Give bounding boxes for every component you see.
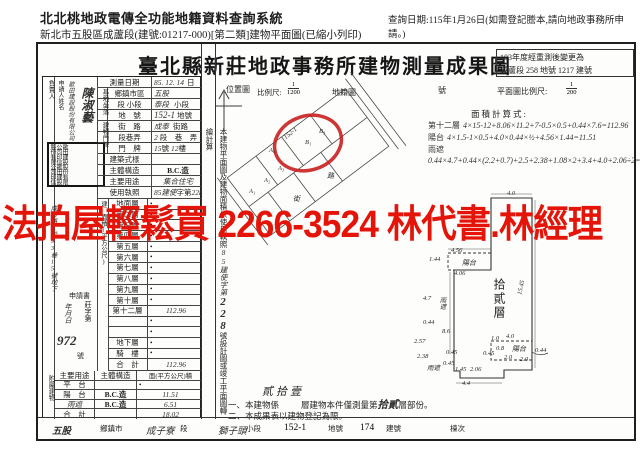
plan-dim: 1.0	[491, 335, 499, 342]
upper-rows: 測量日期 85. 12. 14日 鄉鎮市區 五股 段 小段 泰段小段 地 號 1…	[98, 77, 202, 199]
plan-dim: 4.0	[506, 333, 514, 340]
site-row1-label: 鄉鎮市區	[108, 88, 152, 98]
survey-date-value: 85. 12. 14	[154, 78, 184, 87]
applicant-label: 申請人姓名	[56, 80, 65, 142]
structure-value: B.C.造	[152, 165, 202, 176]
map-block-label: A₄	[269, 147, 275, 154]
floor-label: 第六層	[108, 252, 148, 262]
annex-area: 6.51	[137, 400, 202, 409]
map-block-label: A₂	[264, 177, 270, 184]
plan-dim: 4.4	[462, 380, 470, 387]
site-row1-value: 五股	[152, 88, 202, 99]
map-block-label: A₃	[278, 165, 284, 172]
plan-dim: 0.45	[446, 349, 457, 356]
footer-section-value: 成子寮	[146, 423, 175, 437]
footer-location-row: 五股 鄉鎮市 成子寮 段 獅子頭 小段 152-1 地號 174 建號 棟次	[38, 417, 634, 437]
realtor-watermark: 法拍屋輕鬆買 2266-3524 林代書.林經理	[2, 193, 640, 248]
floor-value: •	[148, 253, 202, 261]
annex-area: 11.51	[137, 390, 202, 399]
door-street-hw: 成泰	[154, 121, 169, 132]
floor-label: 騎 樓	[108, 349, 148, 359]
receipt-prefix: 莊字第	[83, 301, 93, 333]
annex-struct: B.C.造	[95, 390, 137, 399]
floor-label: 第九層	[108, 285, 148, 295]
company-seal-stamp: 歌田建設股份有限公司印信歌田建設股份有限公司印信	[47, 142, 105, 187]
footer-parcel-label: 地號	[328, 423, 343, 434]
area-total-label: 合 計	[108, 359, 148, 370]
annex-struct: B.C.造	[95, 400, 137, 409]
system-title: 北北桃地政電傳全功能地籍資料查詢系統	[40, 8, 283, 27]
floor-label: 第八層	[108, 274, 148, 284]
floor-value: •	[148, 317, 202, 325]
annex-use: 陽 台	[55, 390, 95, 399]
door-sec-hw: 2	[154, 133, 158, 142]
parcel-number: 152-1	[154, 110, 175, 120]
plan-floor-label: 拾貳層	[491, 278, 508, 330]
plan-dim: 2.38	[417, 353, 428, 360]
survey-date-label: 測量日期	[98, 77, 152, 87]
footer-subsection-value: 獅子頭	[218, 423, 247, 437]
receipt-suffix: 號	[77, 351, 84, 361]
annex-section: 主要用途 主體構造 面(平方公尺)積 平 台 • 陽 台 B.C.造 11.51…	[55, 371, 202, 419]
plan-dim: 0.45	[443, 360, 454, 367]
annex-use: 雨遮	[55, 400, 95, 409]
annex-header-area: 面(平方公尺)積	[137, 370, 202, 380]
plan-balcony-label: 陽台	[462, 258, 476, 268]
site-row2-label: 段 小段	[108, 99, 152, 109]
footer-building-no-value: 174	[360, 423, 374, 433]
floor-value: •	[148, 285, 202, 293]
door-row2-label: 段巷弄	[108, 132, 152, 142]
receipt-number: 972	[57, 333, 77, 349]
map-road-label: 路	[327, 171, 334, 181]
floor-value: •	[148, 339, 202, 347]
plan-dim: 1.45	[455, 366, 466, 373]
floor-label: 第十二層	[108, 306, 148, 316]
floor-label: 第七層	[108, 263, 148, 273]
receipt-doc-label: 申請書	[69, 291, 90, 301]
area-total-value: 112.96	[148, 360, 202, 369]
use-label: 主要用途	[98, 176, 152, 186]
annex-area: •	[137, 381, 202, 389]
footer-township-value: 五股	[52, 423, 71, 437]
map-block-label: B₃	[319, 128, 325, 135]
footer-building-no-label: 建號	[386, 423, 401, 434]
annex-use: 平 台	[55, 381, 95, 390]
annex-header-struct: 主體構造	[95, 371, 137, 380]
plan-dim: 0.8	[496, 345, 504, 352]
plan-dim: 0.44	[535, 347, 546, 354]
plan-dim: 0.45	[483, 350, 494, 357]
map-block-label: B₁	[305, 139, 311, 146]
annex-header-use: 主要用途	[55, 371, 95, 380]
scanned-document-page: 北北桃地政電傳全功能地籍資料查詢系統 新北市五股區成蘆段(建號:01217-00…	[0, 0, 640, 453]
plan-dim: 1.44	[429, 256, 440, 263]
plan-dim: 2.0	[520, 356, 528, 363]
floor-value: •	[148, 275, 202, 283]
floor-label	[108, 317, 148, 327]
plan-dim: 8.6	[442, 328, 450, 335]
floor-12-area: 112.96	[148, 306, 202, 315]
site-row3-label: 地 號	[108, 110, 152, 120]
plan-dim: 4.7	[423, 295, 431, 302]
floor-value: •	[148, 264, 202, 272]
site-row2-hw: 泰段	[154, 99, 169, 110]
plan-canopy-label: 雨遮	[436, 297, 446, 315]
door-group-label: 建物門牌	[99, 122, 109, 154]
style-label: 建築式樣	[98, 154, 152, 164]
plan-dim: 2.0	[504, 354, 512, 361]
footer-subsection-label: 小段	[246, 423, 261, 434]
query-date: 查詢日期:115年1月26日(如需登記謄本,請向地政事務所申請。)	[388, 12, 640, 40]
plan-dim: 2.06	[470, 366, 481, 373]
annex-side-label: 附屬建物	[45, 375, 55, 417]
plan-dim: 2.57	[414, 338, 425, 345]
footer-block-label: 棟次	[450, 423, 465, 434]
plan-dim: 0.44	[423, 319, 434, 326]
annex-struct	[95, 381, 137, 390]
site-group-label: 基地坐落	[99, 89, 109, 121]
plan-dim: 4.06	[454, 270, 465, 277]
structure-label: 主體構造	[98, 165, 152, 175]
door-row1-label: 街 路	[108, 121, 152, 131]
floor-label: 第十層	[108, 295, 148, 305]
use-value: 集合住宅	[152, 176, 202, 187]
footer-parcel-value: 152-1	[284, 423, 306, 433]
floor-value: •	[148, 328, 202, 336]
floor-label	[108, 327, 148, 337]
plan-canopy-label: 雨遮	[427, 362, 440, 372]
door-row3-label: 門 牌	[108, 143, 152, 153]
plan-dim: 4.56	[451, 247, 462, 254]
north-arrow-icon	[216, 90, 242, 130]
document-subtitle: 新北市五股區成蘆段(建號:01217-000)[第二類]建物平面圖(已縮小列印)	[40, 27, 361, 42]
plan-balcony-label: 陽台	[512, 344, 526, 354]
floor-value: •	[148, 296, 202, 304]
floor-label: 地下層	[108, 338, 148, 348]
floor-value: •	[148, 349, 202, 357]
footer-section-label: 段	[180, 423, 188, 434]
footer-township-label: 鄉鎮市	[100, 423, 123, 434]
note-surveyed-floor: 拾貳	[378, 400, 399, 411]
